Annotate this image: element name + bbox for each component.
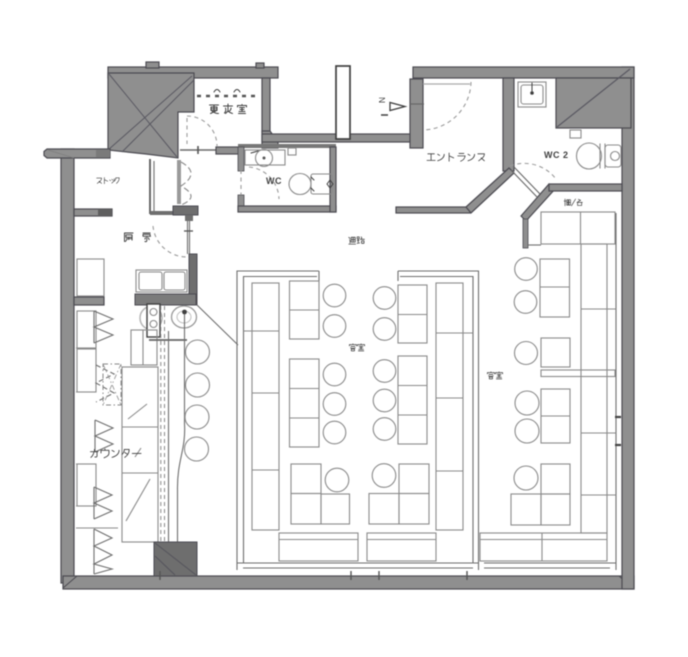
svg-text:N: N bbox=[377, 97, 387, 103]
svg-text:WC: WC bbox=[266, 176, 282, 186]
svg-text:WC 2: WC 2 bbox=[544, 150, 569, 160]
